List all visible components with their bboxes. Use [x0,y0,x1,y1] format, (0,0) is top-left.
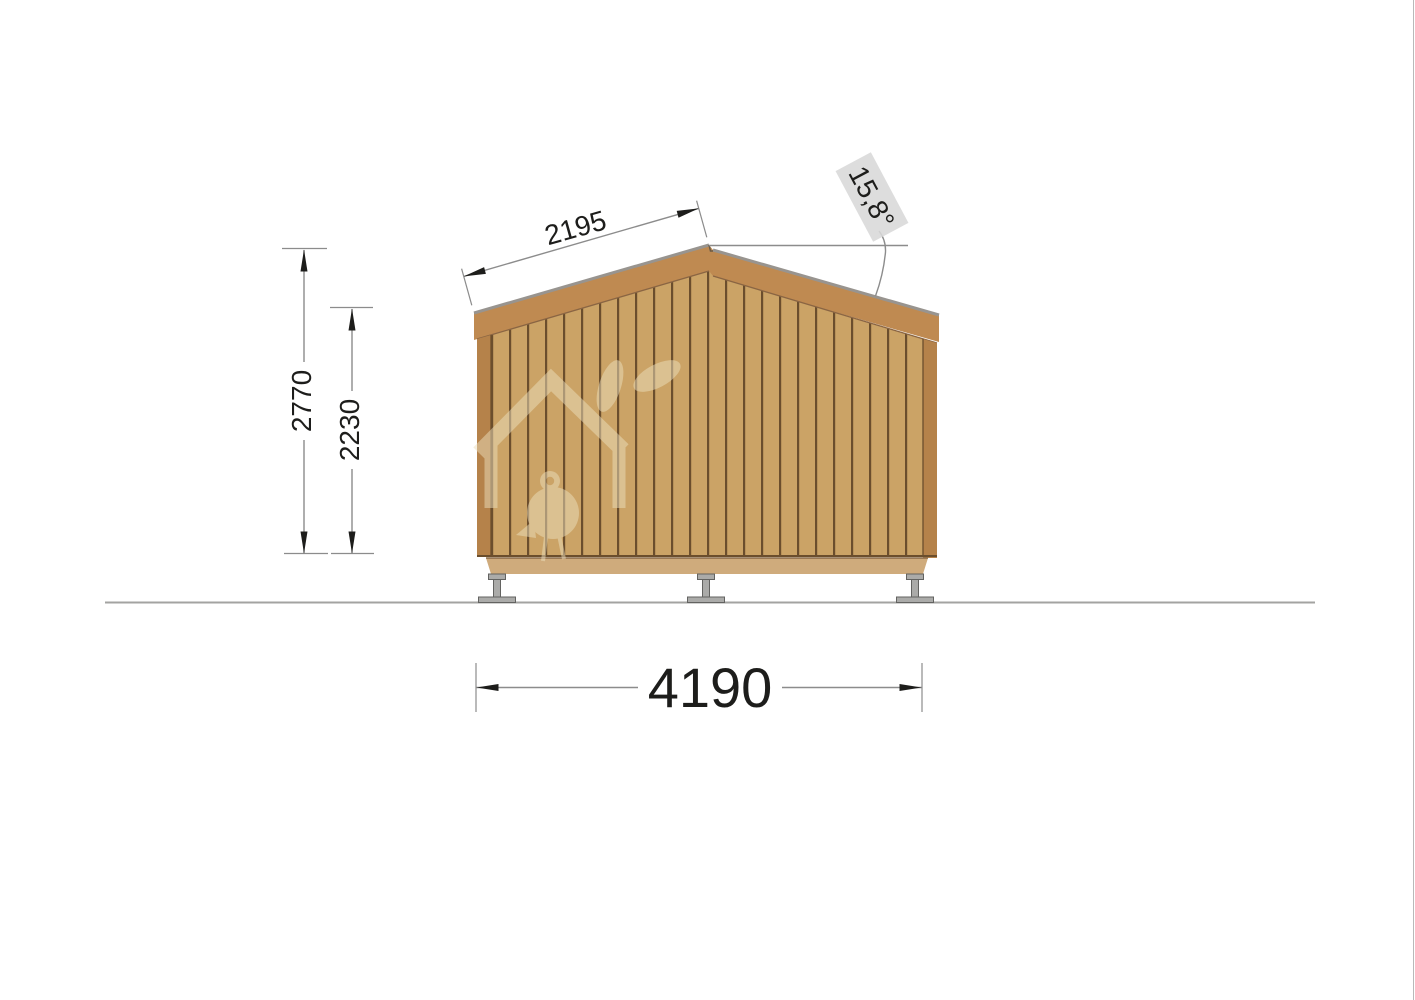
cabin-side-elevation-drawing: 2195 15,8° 2770 [0,0,1415,1000]
building-elevation [474,245,939,603]
dimension-overall-height: 2770 [282,249,328,554]
dimension-wall-height: 2230 [330,308,374,554]
foundation-post [479,574,516,603]
dimension-value-overall-width: 4190 [648,656,773,719]
foundation-post [897,574,934,603]
dimension-value-wall-height: 2230 [334,399,365,461]
floor-base-band [486,558,928,574]
watermark-bird-eye-hole [546,477,554,485]
dimension-value-overall-height: 2770 [286,370,317,432]
corner-trim-right [923,339,937,558]
drawing-page: 2195 15,8° 2770 [0,0,1415,1000]
dimension-overall-width: 4190 [476,656,922,719]
foundation-post [688,574,725,603]
